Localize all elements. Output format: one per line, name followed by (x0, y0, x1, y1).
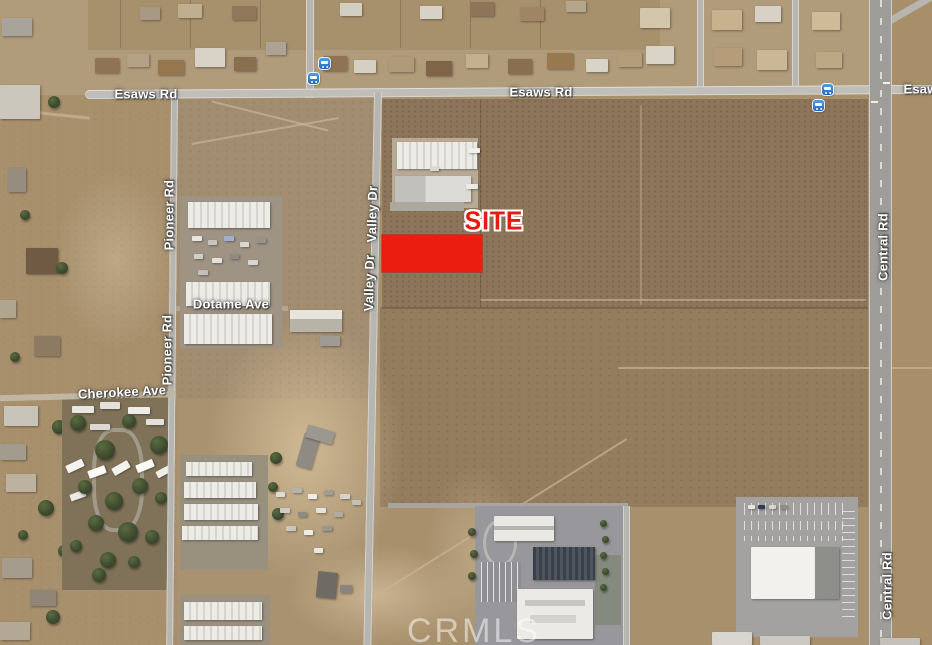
truck (466, 184, 478, 189)
house (547, 53, 573, 69)
stored-vehicle (224, 236, 234, 241)
parcel-line (380, 307, 868, 309)
tree (70, 540, 82, 552)
house (140, 7, 160, 20)
tree (150, 436, 168, 454)
tree (128, 556, 140, 568)
stored-vehicle (192, 236, 202, 241)
dirt-trail (480, 299, 866, 301)
mobile-home (90, 424, 110, 430)
house (812, 12, 840, 30)
house (389, 57, 414, 72)
bus-stop-icon (813, 100, 824, 111)
tree (70, 415, 86, 431)
warehouse (184, 482, 256, 498)
house (0, 300, 16, 318)
yard-fence (400, 0, 401, 48)
stored-vehicle (198, 270, 208, 275)
yard-fence (260, 0, 261, 48)
house (714, 48, 742, 66)
parcel-line (480, 100, 481, 308)
residential-street (792, 0, 799, 92)
truck (468, 148, 480, 153)
car (758, 505, 765, 509)
mobile-home (128, 407, 150, 414)
road-label-esaws-east: Esaws Rd (903, 82, 932, 97)
stored-vehicle (212, 258, 222, 263)
tree (600, 584, 607, 591)
parking-stripes (842, 505, 855, 617)
junk-item (308, 494, 317, 499)
tree (602, 536, 609, 543)
road-marking (871, 101, 878, 103)
warehouse (184, 602, 262, 620)
parking-lot (481, 562, 521, 602)
house (646, 46, 674, 64)
warehouse (186, 462, 252, 476)
site-marker (382, 235, 482, 272)
tree (600, 552, 607, 559)
road-label-central-south: Central Rd (880, 552, 895, 620)
house (232, 6, 256, 20)
warehouse (184, 314, 272, 344)
junk-item (322, 526, 332, 531)
tree (88, 515, 104, 531)
residential-street (697, 0, 704, 92)
tree (56, 262, 68, 274)
school-building-detail (525, 600, 585, 606)
junk-item (276, 492, 285, 497)
house (618, 52, 642, 67)
house (420, 6, 442, 19)
house (586, 59, 608, 72)
tree (105, 492, 123, 510)
driveway-apron (390, 202, 464, 211)
house (95, 58, 119, 73)
house (26, 248, 58, 274)
road-label-valley-south: Valley Dr (361, 255, 377, 312)
road-label-central-north: Central Rd (876, 213, 891, 281)
house (0, 444, 26, 460)
tree (95, 440, 115, 460)
house (340, 3, 362, 16)
house (712, 10, 742, 30)
warehouse (184, 504, 258, 520)
tree (20, 210, 30, 220)
road-label-esaws-center: Esaws Rd (509, 85, 572, 100)
parking-lane (744, 515, 848, 521)
house (8, 168, 26, 192)
tree (602, 568, 609, 575)
building (712, 632, 752, 645)
satellite-map: Esaws Rd Esaws Rd Esaws Rd Pioneer Rd Pi… (0, 0, 932, 645)
house (34, 336, 60, 356)
tree (118, 522, 138, 542)
road-label-valley-north: Valley Dr (364, 186, 380, 243)
road-label-pioneer-north: Pioneer Rd (162, 180, 177, 251)
tree (145, 530, 159, 544)
junk-item (316, 508, 326, 513)
house (234, 57, 256, 71)
scrub-texture (380, 309, 868, 507)
house (178, 4, 202, 18)
house (566, 1, 586, 12)
house (426, 61, 452, 76)
yard-fence (120, 0, 121, 48)
school-building-detail (494, 526, 554, 530)
tree (600, 520, 607, 527)
bus-stop-icon (822, 84, 833, 95)
stored-vehicle (256, 238, 266, 243)
junk-item (292, 488, 302, 493)
mobile-home (72, 406, 94, 413)
house (266, 42, 286, 55)
stored-vehicle (208, 240, 217, 245)
small-building (316, 571, 339, 599)
house (816, 52, 842, 68)
parking-lane (744, 530, 848, 536)
road-school-east (623, 506, 630, 645)
tree (468, 528, 476, 536)
shrub (270, 452, 282, 464)
house (0, 85, 40, 119)
shed (320, 336, 340, 346)
site-annotation-label: SITE (465, 206, 524, 237)
tree (100, 552, 116, 568)
warehouse-roof (290, 310, 342, 319)
junk-item (286, 526, 296, 531)
junk-item (298, 512, 307, 517)
car (748, 505, 755, 509)
junk-item (304, 530, 313, 535)
road-label-pioneer-south: Pioneer Rd (160, 315, 175, 386)
small-building (340, 585, 352, 593)
house (6, 474, 36, 492)
stored-vehicle (194, 254, 203, 259)
house (4, 406, 38, 426)
house (127, 54, 149, 67)
stored-vehicle (230, 254, 239, 259)
warehouse (184, 626, 262, 640)
tree (470, 550, 478, 558)
tree (468, 572, 476, 580)
shrub (268, 482, 278, 492)
tree (38, 500, 54, 516)
bus-stop-icon (319, 58, 330, 69)
commercial-building-wing (815, 547, 839, 599)
car (780, 505, 787, 509)
car (769, 505, 776, 509)
junk-item (340, 494, 350, 499)
road-central-centerline (880, 0, 882, 645)
dirt-trail (640, 105, 642, 305)
house (2, 558, 32, 578)
mobile-home (100, 402, 120, 409)
solar-canopy (533, 547, 595, 580)
truck (430, 167, 439, 171)
junk-item (314, 548, 323, 553)
road-label-dotame: Dotame Ave (193, 297, 269, 312)
building (880, 638, 920, 645)
house (466, 54, 488, 68)
road-label-esaws-west: Esaws Rd (114, 87, 177, 102)
road-marking (883, 82, 890, 84)
bus-stop-icon (308, 73, 319, 84)
lawn (595, 555, 621, 625)
house (195, 48, 225, 67)
warehouse (395, 176, 471, 202)
warehouse (397, 142, 477, 169)
commercial-building (751, 547, 815, 599)
junk-item (334, 512, 343, 517)
house (757, 50, 787, 70)
tree (18, 530, 28, 540)
stored-vehicle (248, 260, 258, 265)
tree (48, 96, 60, 108)
house (470, 2, 494, 16)
tree (132, 478, 148, 494)
house (520, 7, 544, 21)
tree (155, 492, 167, 504)
warehouse (182, 526, 258, 540)
terrain-east-of-central (892, 0, 932, 645)
house (755, 6, 781, 22)
house (0, 622, 30, 640)
mobile-home (146, 419, 164, 425)
house (508, 59, 532, 74)
house (640, 8, 670, 28)
tree (78, 480, 92, 494)
tree (92, 568, 106, 582)
house (354, 60, 376, 73)
house (158, 60, 184, 75)
building (760, 636, 810, 645)
tree (10, 352, 20, 362)
tree (46, 610, 60, 624)
stored-vehicle (240, 242, 249, 247)
warehouse (188, 202, 270, 228)
junk-item (352, 500, 361, 505)
junk-item (324, 490, 333, 495)
junk-item (280, 508, 290, 513)
tree (122, 414, 136, 428)
house (2, 18, 32, 36)
house (30, 590, 56, 606)
crmls-watermark: CRMLS (407, 612, 541, 645)
